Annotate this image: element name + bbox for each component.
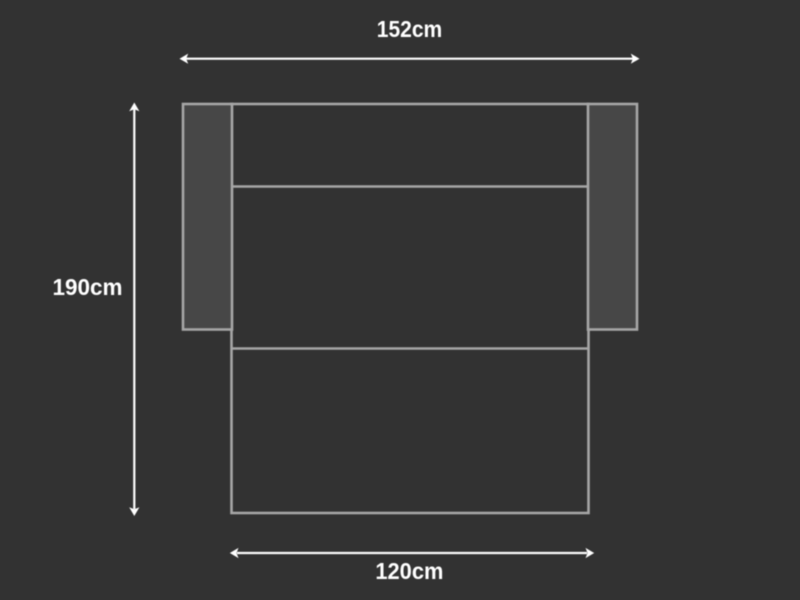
svg-text:120cm: 120cm bbox=[375, 558, 443, 584]
svg-text:190cm: 190cm bbox=[53, 274, 123, 300]
svg-text:152cm: 152cm bbox=[377, 16, 443, 42]
